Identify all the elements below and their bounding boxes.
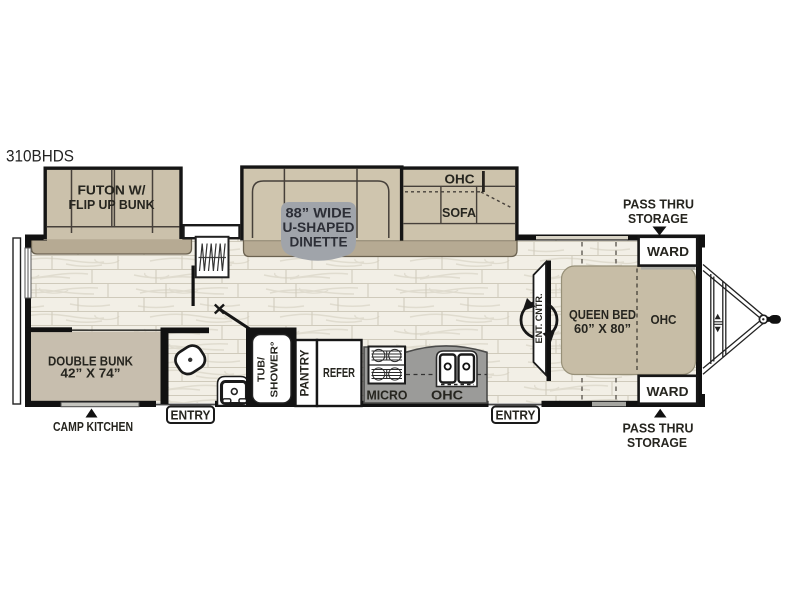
svg-text:U-SHAPED: U-SHAPED [283, 220, 355, 235]
svg-text:STORAGE: STORAGE [627, 435, 687, 450]
svg-text:88” WIDE: 88” WIDE [286, 206, 352, 221]
svg-text:OHC: OHC [445, 172, 476, 187]
svg-text:STORAGE: STORAGE [628, 211, 688, 226]
svg-text:OHC: OHC [431, 388, 464, 403]
svg-text:60” X 80”: 60” X 80” [574, 321, 631, 336]
svg-text:PASS THRU: PASS THRU [623, 421, 694, 436]
svg-text:ENTRY: ENTRY [171, 408, 211, 423]
svg-text:SHOWER°: SHOWER° [269, 342, 281, 398]
svg-text:ENT. CNTR.: ENT. CNTR. [534, 294, 544, 344]
svg-text:CAMP KITCHEN: CAMP KITCHEN [53, 420, 133, 434]
svg-text:OHC: OHC [651, 312, 678, 327]
svg-text:FLIP UP BUNK: FLIP UP BUNK [69, 197, 156, 212]
svg-text:PASS THRU: PASS THRU [623, 197, 694, 212]
svg-text:WARD: WARD [647, 384, 689, 399]
svg-text:QUEEN BED: QUEEN BED [569, 307, 636, 322]
svg-text:SOFA: SOFA [442, 205, 477, 220]
svg-text:PANTRY: PANTRY [300, 349, 312, 396]
svg-text:ENTRY: ENTRY [496, 408, 536, 423]
svg-text:FUTON W/: FUTON W/ [78, 183, 146, 198]
svg-text:42” X 74”: 42” X 74” [61, 366, 121, 381]
svg-text:TUB/: TUB/ [256, 357, 268, 382]
svg-text:310BHDS: 310BHDS [6, 147, 74, 166]
svg-text:REFER: REFER [323, 366, 355, 380]
svg-text:MICRO: MICRO [367, 388, 408, 403]
svg-text:WARD: WARD [647, 244, 689, 259]
svg-text:DINETTE: DINETTE [290, 235, 348, 250]
